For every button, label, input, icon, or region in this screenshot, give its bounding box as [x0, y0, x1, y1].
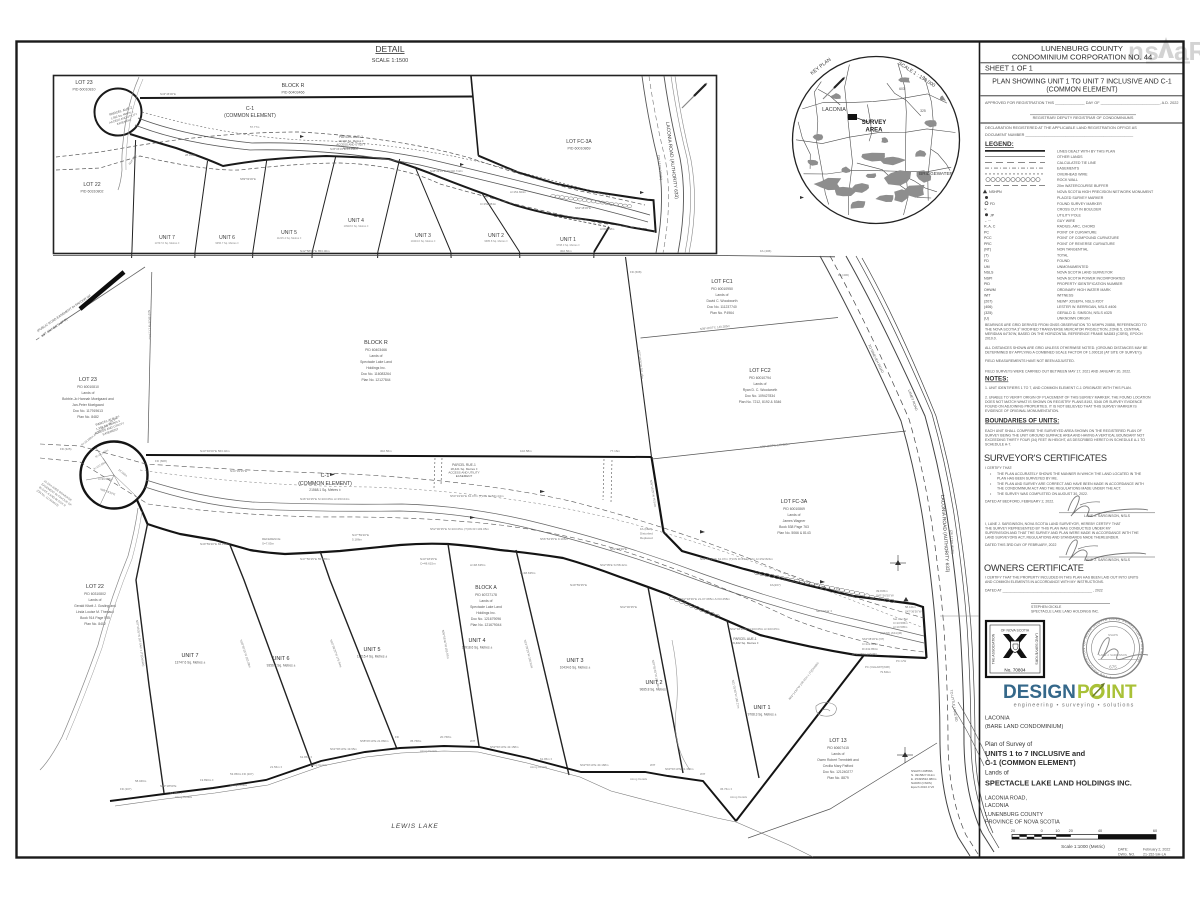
svg-text:UM: UM [984, 265, 990, 269]
svg-text:INT: INT [1106, 682, 1137, 703]
svg-text:9356.7 Sq. Metres ±: 9356.7 Sq. Metres ± [215, 241, 239, 245]
svg-text:NOTES:: NOTES: [985, 376, 1008, 383]
svg-text:(COMMON ELEMENT): (COMMON ELEMENT) [224, 113, 276, 119]
svg-text:OHWM: OHWM [984, 288, 996, 292]
svg-text:R, A, C: R, A, C [984, 225, 996, 229]
svg-text:N62°05'E S=58.42m: N62°05'E S=58.42m [600, 563, 628, 567]
svg-text:UNIT 6: UNIT 6 [273, 656, 290, 662]
svg-text:NOVA SCOTIA POWER INCORPORATED: NOVA SCOTIA POWER INCORPORATED [1057, 276, 1126, 280]
svg-text:UNIT 1: UNIT 1 [754, 705, 771, 711]
svg-text:C-1: C-1 [246, 106, 254, 112]
svg-text:CALCULATED TIE LINE: CALCULATED TIE LINE [1057, 161, 1097, 165]
svg-text:Along Details: Along Details [420, 749, 438, 753]
svg-text:PROPERTY IDENTIFICATION NUMBER: PROPERTY IDENTIFICATION NUMBER [1057, 282, 1123, 286]
svg-text:FOUND SURVEY MARKER: FOUND SURVEY MARKER [1057, 202, 1102, 206]
svg-text:Lands of: Lands of [787, 513, 800, 517]
svg-text:A=152.824m: A=152.824m [510, 190, 527, 194]
svg-text:RADIUS, ARC, CHORD: RADIUS, ARC, CHORD [1057, 225, 1096, 229]
svg-text:FOUND ON ADJOINING PROPERTIES.: FOUND ON ADJOINING PROPERTIES. IT IS NOT… [985, 405, 1137, 409]
svg-text:SURVEY BEING THE UNIT GROUND S: SURVEY BEING THE UNIT GROUND SURFACE ARE… [985, 434, 1145, 438]
svg-text:Plan No. 12127844: Plan No. 12127844 [361, 378, 390, 382]
svg-text:SCALE 1:1500: SCALE 1:1500 [372, 58, 408, 64]
svg-text:N62°18'36"E: N62°18'36"E [575, 206, 591, 210]
svg-text:9685.8 Sq. Metres ±: 9685.8 Sq. Metres ± [640, 688, 669, 692]
svg-text:THE SURVEY REPRESENTED BY THIS: THE SURVEY REPRESENTED BY THIS PLAN WAS … [985, 527, 1111, 531]
svg-text:I, LANE J. SARGINSON, NOVA SCO: I, LANE J. SARGINSON, NOVA SCOTIA LAND S… [985, 522, 1122, 526]
svg-text:79.841m: 79.841m [880, 670, 892, 674]
svg-text:PID 60727178: PID 60727178 [475, 593, 497, 597]
svg-text:Spectacle Lake Land: Spectacle Lake Land [360, 360, 392, 364]
svg-text:(COMMON ELEMENT): (COMMON ELEMENT) [1046, 87, 1117, 94]
svg-text:Set Rebar ±: Set Rebar ± [816, 609, 832, 613]
svg-text:N63°18'50"E: N63°18'50"E [160, 784, 176, 788]
svg-text:PLAN HAS BEEN SURVEYED BY ME.: PLAN HAS BEEN SURVEYED BY ME. [997, 477, 1058, 481]
svg-text:THE NOVA SCOTIA 3° MODIFIED TR: THE NOVA SCOTIA 3° MODIFIED TRANSVERSE M… [985, 328, 1140, 332]
svg-text:N43°46'00"E: N43°46'00"E [160, 92, 176, 96]
svg-text:(T): (T) [984, 253, 989, 257]
svg-text:R=432.850m: R=432.850m [862, 647, 879, 651]
svg-text:UNIT 2: UNIT 2 [646, 680, 663, 686]
svg-text:FA (DEF): FA (DEF) [640, 527, 652, 531]
svg-text:WIT: WIT [700, 772, 706, 776]
svg-text:James Wagner: James Wagner [783, 519, 807, 523]
svg-text:DETERMINED BY APPLYING A COMBI: DETERMINED BY APPLYING A COMBINED SCALE … [985, 351, 1142, 355]
svg-text:LANE J. SARGINSON, NSLS: LANE J. SARGINSON, NSLS [1084, 514, 1131, 518]
svg-text:Holdings Inc.: Holdings Inc. [476, 611, 496, 615]
svg-text:A=63.258m: A=63.258m [600, 227, 615, 231]
svg-text:P: P [1077, 682, 1090, 703]
svg-text:302.56m: 302.56m [380, 449, 392, 453]
svg-text:Book 538 Page 763: Book 538 Page 763 [779, 525, 809, 529]
svg-text:FOUND: FOUND [1057, 259, 1070, 263]
svg-text:Lands of: Lands of [753, 382, 766, 386]
svg-text:Owen Robert Tremblett and: Owen Robert Tremblett and [817, 758, 859, 762]
svg-text:SPECTACLE LAKE LAND HOLDINGS I: SPECTACLE LAKE LAND HOLDINGS INC. [985, 779, 1132, 788]
svg-text:David C. Woodworth: David C. Woodworth [706, 299, 737, 303]
svg-text:WIT: WIT [984, 294, 991, 298]
svg-text:(NT): (NT) [984, 248, 991, 252]
svg-text:(NT): (NT) [848, 594, 854, 598]
svg-text:LOT 23: LOT 23 [79, 377, 97, 383]
svg-text:20.768m: 20.768m [440, 735, 452, 739]
svg-text:BLOCK R: BLOCK R [364, 340, 388, 346]
svg-text:10918.6 Sq. Metres ±: 10918.6 Sq. Metres ± [462, 646, 493, 650]
svg-text:EASEMENT: EASEMENT [343, 146, 359, 150]
svg-text:N52°50'10"E 43.158m: N52°50'10"E 43.158m [490, 745, 519, 749]
svg-text:N42°58'00"E 853.00m: N42°58'00"E 853.00m [300, 249, 330, 253]
svg-text:(U): (U) [984, 317, 989, 321]
svg-text:Plan No. 8482: Plan No. 8482 [77, 415, 99, 419]
svg-text:FIELD SURVEYS WERE CARRIED OUT: FIELD SURVEYS WERE CARRIED OUT BETWEEN M… [985, 370, 1131, 374]
svg-text:Disturbed: Disturbed [640, 532, 653, 536]
svg-text:53.050m FD (207): 53.050m FD (207) [230, 772, 253, 776]
svg-text:EASEMENTS: EASEMENTS [1057, 167, 1080, 171]
svg-text:UNMONUMENTED: UNMONUMENTED [1057, 265, 1089, 269]
svg-text:20: 20 [1011, 829, 1015, 833]
svg-text:DATED THIS 3RD DAY OF FEBRUARY: DATED THIS 3RD DAY OF FEBRUARY, 2022 [985, 543, 1056, 547]
svg-text:LOT FC-3A: LOT FC-3A [566, 139, 592, 145]
svg-text:DOES NOT MATCH WHAT IS SHOWN O: DOES NOT MATCH WHAT IS SHOWN ON REGISTRY… [985, 400, 1143, 404]
svg-text:WIT: WIT [470, 739, 476, 743]
svg-text:Lands of: Lands of [715, 293, 728, 297]
svg-text:LACONIA: LACONIA [985, 803, 1009, 809]
svg-text:PID 60607415: PID 60607415 [827, 746, 849, 750]
svg-text:13747.6 Sq. Metres ±: 13747.6 Sq. Metres ± [175, 661, 206, 665]
svg-text:ORDINARY HIGH WATER MARK: ORDINARY HIGH WATER MARK [1057, 288, 1111, 292]
svg-text:WIT: WIT [650, 763, 656, 767]
svg-text:9768.3 Sq. Metres ±: 9768.3 Sq. Metres ± [748, 713, 777, 717]
svg-text:N62°44'35"E 61.07m (T)ON R=4: N62°44'35"E 61.07m (T)ON R=432.712m A=15… [700, 557, 773, 561]
svg-text:UNIT 2: UNIT 2 [488, 233, 504, 239]
svg-text:ROCK WALL: ROCK WALL [1057, 178, 1078, 182]
svg-text:N62°50'10"E 40.168m: N62°50'10"E 40.168m [580, 763, 609, 767]
svg-text:REFERENCE: REFERENCE [262, 537, 281, 541]
svg-text:EACH UNIT SHALL COMPRISE THE S: EACH UNIT SHALL COMPRISE THE SURVEYED AR… [985, 429, 1142, 433]
svg-text:PRC: PRC [984, 242, 992, 246]
svg-text:THE ASSOCIATION: THE ASSOCIATION [992, 633, 996, 664]
svg-text:engineering • surveying •: engineering • surveying • solutions [1014, 703, 1135, 709]
svg-text:THE CONDOMINIUM ACT AND THE R: THE CONDOMINIUM ACT AND THE REGULATIONS … [997, 487, 1121, 491]
svg-text:SHEET 1 OF 1: SHEET 1 OF 1 [985, 64, 1033, 73]
svg-text:PID 60010950: PID 60010950 [711, 287, 733, 291]
svg-text:Plan No. P4964: Plan No. P4964 [710, 311, 734, 315]
svg-text:BEARINGS ARE GRID DERIVED FROM: BEARINGS ARE GRID DERIVED FROM GNSS OBSE… [985, 323, 1147, 327]
svg-text:PID 60403466: PID 60403466 [365, 348, 387, 352]
svg-text:LOT FC-3A: LOT FC-3A [781, 499, 808, 505]
svg-text:N43°46'00"E 563.02m: N43°46'00"E 563.02m [200, 449, 230, 453]
svg-text:I CERTIFY THAT:: I CERTIFY THAT: [985, 466, 1012, 470]
svg-text:LOT 23: LOT 23 [75, 80, 92, 86]
svg-text:DESIGN: DESIGN [1003, 682, 1076, 703]
svg-text:FD (608): FD (608) [155, 459, 167, 463]
svg-text:UNIT 4: UNIT 4 [348, 218, 364, 224]
svg-text:LEGEND:: LEGEND: [985, 141, 1014, 148]
svg-text:Plan of Survey of: Plan of Survey of [985, 741, 1032, 748]
svg-text:60: 60 [1153, 829, 1157, 833]
svg-text:UNIT 7: UNIT 7 [159, 235, 175, 241]
svg-text:PID 60403466: PID 60403466 [282, 91, 305, 95]
svg-text:N62°18'36"E S=103.05m A=103.: N62°18'36"E S=103.05m A=103.05m [730, 627, 780, 631]
svg-text:Cecilia Mary Pafford: Cecilia Mary Pafford [823, 764, 854, 768]
svg-text:BLOCK R: BLOCK R [282, 83, 305, 89]
svg-text:Doc No. 109427834: Doc No. 109427834 [745, 394, 775, 398]
svg-text:GERALD D. SIMSON, NSLS #325: GERALD D. SIMSON, NSLS #325 [1057, 311, 1112, 315]
svg-text:SCHEDULE A-7.: SCHEDULE A-7. [985, 443, 1011, 447]
svg-text:PID 60310802: PID 60310802 [81, 190, 104, 194]
svg-text:PROVINCE OF NOVA SCOTIA: PROVINCE OF NOVA SCOTIA [985, 820, 1060, 826]
svg-text:I CERTIFY THAT THE PROPERTY IN: I CERTIFY THAT THE PROPERTY INCLUDED IN … [985, 576, 1139, 580]
svg-text:C-1: C-1 [321, 473, 330, 479]
svg-text:LAND SURVEYORS ACT, REGULATION: LAND SURVEYORS ACT, REGULATIONS AND STAN… [985, 536, 1119, 540]
svg-text:TOTAL: TOTAL [1057, 253, 1068, 257]
svg-text:EASEMENT: EASEMENT [456, 474, 473, 478]
svg-text:✕: ✕ [984, 208, 987, 212]
svg-text:NSLS: NSLS [984, 271, 994, 275]
svg-text:JP: JP [990, 213, 995, 217]
svg-text:77.16m: 77.16m [610, 449, 621, 453]
svg-text:S=7.05m: S=7.05m [262, 542, 275, 546]
svg-text:N43°18'25"E: N43°18'25"E [420, 557, 437, 561]
svg-text:PID: PID [984, 282, 990, 286]
svg-text:Replaced: Replaced [640, 536, 653, 540]
svg-text:9685.8 Sq. Metres ±: 9685.8 Sq. Metres ± [484, 239, 508, 243]
svg-text:PC (OHLAW?)(608): PC (OHLAW?)(608) [865, 665, 890, 669]
svg-text:OTHER LANDS: OTHER LANDS [1057, 155, 1083, 159]
svg-text:BOUNDARIES OF UNITS:: BOUNDARIES OF UNITS: [985, 418, 1059, 425]
svg-text:B=48.635m: B=48.635m [520, 571, 536, 575]
svg-text:BLOCK A: BLOCK A [475, 585, 497, 591]
svg-text:N58°06'10"E 21.860m: N58°06'10"E 21.860m [360, 739, 389, 743]
svg-text:675: 675 [1109, 665, 1117, 670]
svg-text:20m WATERCOURSE BUFFER: 20m WATERCOURSE BUFFER [1057, 184, 1109, 188]
svg-text:36.76m ±: 36.76m ± [720, 787, 732, 791]
svg-text:EXCEEDING THIRTY FOUR (34) FEE: EXCEEDING THIRTY FOUR (34) FEET IN HEIGH… [985, 438, 1145, 442]
svg-text:C-1 (COMMON ELEMENT): C-1 (COMMON ELEMENT) [985, 758, 1076, 767]
svg-text:Plan No. 121679044: Plan No. 121679044 [471, 623, 502, 627]
svg-text:0: 0 [1041, 829, 1043, 833]
svg-text:LOT 22: LOT 22 [86, 584, 104, 590]
svg-text:PID 60010869: PID 60010869 [568, 147, 591, 151]
svg-text:GUY WIRE: GUY WIRE [1057, 219, 1076, 223]
svg-text:(BARE LAND CONDOMINIUM): (BARE LAND CONDOMINIUM) [985, 724, 1063, 730]
svg-text:Doc No. 117919613: Doc No. 117919613 [73, 409, 103, 413]
svg-text:No. 70804: No. 70804 [1004, 668, 1026, 673]
svg-text:PC: PC [984, 230, 989, 234]
svg-text:20: 20 [1069, 829, 1073, 833]
svg-text:FD: FD [990, 202, 995, 206]
svg-text:Along Details: Along Details [230, 783, 248, 787]
svg-text:LINES DEALT WITH BY THIS PLAN: LINES DEALT WITH BY THIS PLAN [1057, 149, 1115, 153]
svg-text:FD: FD [984, 259, 989, 263]
svg-text:UNIT 3: UNIT 3 [567, 658, 584, 664]
svg-text:PID 60010794: PID 60010794 [749, 376, 771, 380]
svg-text:LOT FC2: LOT FC2 [749, 368, 770, 374]
svg-text:302.56m: 302.56m [560, 249, 572, 253]
svg-text:NEWP JOSEPH, NSLS #207: NEWP JOSEPH, NSLS #207 [1057, 299, 1103, 303]
svg-text:Doc No. 116083264: Doc No. 116083264 [361, 372, 391, 376]
svg-text:NSPI: NSPI [984, 276, 992, 280]
svg-text:UNIT 7: UNIT 7 [182, 653, 199, 659]
svg-text:PLAN SHOWING UNIT 1 TO UNIT 7: PLAN SHOWING UNIT 1 TO UNIT 7 INCLUSIVE … [992, 79, 1172, 86]
svg-text:(325): (325) [984, 311, 992, 315]
svg-text:28.350m: 28.350m [185, 153, 197, 157]
svg-text:FD (608): FD (608) [630, 270, 641, 274]
svg-text:UNKNOWN ORIGIN: UNKNOWN ORIGIN [1057, 317, 1090, 321]
svg-text:PID 60310802: PID 60310802 [84, 592, 106, 596]
svg-text:LOT FC1: LOT FC1 [711, 279, 732, 285]
svg-text:POINT OF REVERSE CURVATURE: POINT OF REVERSE CURVATURE [1057, 242, 1115, 246]
svg-text:Doc No. 121679096: Doc No. 121679096 [471, 617, 501, 621]
svg-text:N49°59'20"E 84.198m: N49°59'20"E 84.198m [200, 542, 230, 546]
svg-text:←···: ←··· [984, 219, 991, 223]
svg-text:UNIT 1: UNIT 1 [560, 237, 576, 243]
svg-text:A=48.635m: A=48.635m [470, 563, 486, 567]
svg-text:Lands of: Lands of [81, 391, 94, 395]
svg-text:UNIT 5: UNIT 5 [364, 647, 381, 653]
svg-text:N52°30'35"E S=103.05m (T)ON: N52°30'35"E S=103.05m (T)ON R=103.05m [430, 527, 489, 531]
svg-text:PID 60010810: PID 60010810 [73, 88, 96, 92]
svg-text:Along Details: Along Details [630, 777, 648, 781]
svg-text:S47°36'50"W: S47°36'50"W [905, 610, 922, 614]
svg-text:BRIDGEWATER: BRIDGEWATER [919, 171, 953, 176]
svg-text:STEPHEN OICKLE: STEPHEN OICKLE [1031, 605, 1062, 609]
svg-text:13747.6 Sq. Metres ±: 13747.6 Sq. Metres ± [155, 241, 180, 245]
svg-text:Plan No. 8879: Plan No. 8879 [827, 776, 849, 780]
svg-text:SURVEYOR'S CERTIFICATES: SURVEYOR'S CERTIFICATES [984, 453, 1107, 463]
svg-text:PID 60010810: PID 60010810 [77, 385, 99, 389]
svg-text:FD (325): FD (325) [60, 447, 71, 451]
svg-text:UNIT 5: UNIT 5 [281, 230, 297, 236]
svg-text:Plan No. 8402: Plan No. 8402 [84, 622, 106, 626]
svg-text:Lands of: Lands of [479, 599, 492, 603]
svg-text:N46°10'25"E S=103.05m A=153.: N46°10'25"E S=103.05m A=153.04m [300, 497, 350, 501]
svg-text:C=48.615m: C=48.615m [420, 562, 436, 566]
svg-text:UNIT 3: UNIT 3 [415, 233, 431, 239]
svg-text:Lands of: Lands of [88, 598, 101, 602]
svg-text:A=33.050m (AS(M)): A=33.050m (AS(M)) [852, 652, 877, 656]
svg-text:POINT OF COMPOUND CURVATURE: POINT OF COMPOUND CURVATURE [1057, 236, 1120, 240]
svg-text:Along Details: Along Details [310, 763, 328, 767]
svg-text:MERIDIAN 64°30'W, BASED ON THE: MERIDIAN 64°30'W, BASED ON THE HORIZONTA… [985, 332, 1143, 336]
svg-text:325: 325 [920, 109, 926, 113]
svg-text:Doc No. 121240277: Doc No. 121240277 [823, 770, 853, 774]
svg-text:35.768m: 35.768m [410, 739, 422, 743]
svg-text:102.58m: 102.58m [520, 449, 532, 453]
svg-text:UTILITY POLE: UTILITY POLE [1057, 213, 1082, 217]
svg-text:N47°59'20"E: N47°59'20"E [352, 533, 369, 537]
svg-text:C=122.953m: C=122.953m [862, 642, 879, 646]
svg-text:N50°19'30"E 61.07m (T)ON R=5: N50°19'30"E 61.07m (T)ON R=561.04m [450, 494, 504, 498]
svg-text:PC C/W: PC C/W [896, 659, 906, 663]
svg-text:NOVA SCOTIA LAND SURVEYOR: NOVA SCOTIA LAND SURVEYOR [1057, 271, 1113, 275]
svg-text:Epoch 2010.0 V6: Epoch 2010.0 V6 [911, 785, 934, 789]
svg-text:58.441m: 58.441m [905, 605, 917, 609]
svg-text:SUPERVISION AND THAT THE SURVE: SUPERVISION AND THAT THE SURVEY AND PLAN… [985, 531, 1139, 535]
svg-text:2. UNABLE TO VERIFY ORIGIN OF: 2. UNABLE TO VERIFY ORIGIN OF PLACEMENT … [985, 396, 1151, 400]
svg-text:(U)&(M) (AS1)(M): (U)&(M) (AS1)(M) [880, 631, 902, 635]
svg-text:Jan-Peter Moelgaard: Jan-Peter Moelgaard [72, 403, 104, 407]
svg-text:APPROVED FOR REGISTRATION THIS: APPROVED FOR REGISTRATION THIS _________… [985, 101, 1178, 105]
svg-text:OWNERS CERTIFICATE: OWNERS CERTIFICATE [984, 563, 1084, 573]
svg-text:603: 603 [899, 87, 905, 91]
svg-text:AREA: AREA [865, 128, 883, 134]
svg-text:February 2, 2022: February 2, 2022 [1143, 848, 1170, 852]
svg-text:REGISTRAR/ DEPUTY REGISTRAR OF: REGISTRAR/ DEPUTY REGISTRAR OF CONDOMINI… [1033, 116, 1134, 120]
svg-text:Scale 1:1000 (Metric): Scale 1:1000 (Metric) [1061, 844, 1105, 849]
svg-text:11215.4 Sq. Metres ±: 11215.4 Sq. Metres ± [277, 236, 302, 240]
svg-text:10: 10 [1055, 829, 1059, 833]
svg-text:LACONIA ROAD,: LACONIA ROAD, [985, 796, 1027, 802]
svg-text:AND COMMON ELEMENTS IN ACCORDA: AND COMMON ELEMENTS IN ACCORDANCE WITH M… [985, 580, 1104, 584]
svg-text:N49°59'35"E: N49°59'35"E [570, 583, 587, 587]
svg-text:THE PLAN AND SURVEY ARE CORREC: THE PLAN AND SURVEY ARE CORRECT AND HAVE… [997, 482, 1144, 486]
svg-text:57.77m: 57.77m [250, 125, 260, 129]
svg-text:DECLARATION REGISTERED AT THE: DECLARATION REGISTERED AT THE APPLICABLE… [985, 126, 1137, 130]
svg-text:N44°39'35"E: N44°39'35"E [230, 469, 247, 473]
svg-text:FD: FD [395, 735, 399, 739]
svg-text:OVERHEAD WIRE: OVERHEAD WIRE [1057, 172, 1088, 176]
svg-text:A=10.595m: A=10.595m [893, 625, 908, 629]
svg-text:THE PLAN ACCURATELY SHOWS THE: THE PLAN ACCURATELY SHOWS THE MANNER IN … [997, 472, 1142, 476]
svg-text:Spectacle Lake Land: Spectacle Lake Land [470, 605, 502, 609]
svg-text:N62°30'35"E: N62°30'35"E [620, 605, 637, 609]
svg-text:N56°54'35"E 9.106m: N56°54'35"E 9.106m [540, 537, 568, 541]
svg-text:10434.6 Sq. Metres ±: 10434.6 Sq. Metres ± [411, 239, 436, 243]
svg-text:(207): (207) [984, 299, 992, 303]
svg-text:5.186m: 5.186m [352, 538, 363, 542]
svg-text:N62°08'36"E (NT): N62°08'36"E (NT) [862, 637, 884, 641]
svg-text:FA(207): FA(207) [770, 583, 781, 587]
svg-text:SPECTACLE LAKE LAND HOLDINGS I: SPECTACLE LAKE LAND HOLDINGS INC. [1031, 609, 1099, 613]
svg-text:UNITS 1 to 7 INCLUSIVE and: UNITS 1 to 7 INCLUSIVE and [985, 749, 1086, 758]
svg-text:Along Details: Along Details [530, 765, 548, 769]
svg-text:N62°18'36"E: N62°18'36"E [610, 547, 627, 551]
svg-text:61.95m ±: 61.95m ± [540, 757, 552, 761]
svg-text:40: 40 [1098, 829, 1102, 833]
svg-text:C=152.084m: C=152.084m [480, 202, 497, 206]
svg-text:LESTER W. BERRIGAN, NSLS #406: LESTER W. BERRIGAN, NSLS #406 [1057, 305, 1116, 309]
svg-text:Holdings Inc.: Holdings Inc. [366, 366, 386, 370]
svg-text:1. UNIT IDENTIFIERS 1 TO 7, AN: 1. UNIT IDENTIFIERS 1 TO 7, AND COMMON E… [985, 386, 1132, 390]
svg-text:FIELD MEASUREMENTS HAVE NOT BE: FIELD MEASUREMENTS HAVE NOT BEEN ADJUSTE… [985, 359, 1075, 363]
svg-text:FD (207): FD (207) [120, 787, 131, 791]
svg-text:UNIT 4: UNIT 4 [469, 638, 486, 644]
svg-text:21-152-SH-LA: 21-152-SH-LA [1143, 853, 1167, 857]
svg-text:DATED AT _____________________: DATED AT _______________________________… [985, 589, 1103, 593]
svg-text:Along Details: Along Details [730, 795, 748, 799]
svg-text:LACONIA: LACONIA [822, 107, 846, 113]
svg-text:Lands of: Lands of [831, 752, 844, 756]
svg-text:LANE J. SARGINSON: LANE J. SARGINSON [1099, 653, 1127, 657]
svg-text:Ryan D. C. Woodworth: Ryan D. C. Woodworth [743, 388, 778, 392]
svg-text:2010.0.: 2010.0. [985, 337, 997, 341]
svg-text:ALL DISTANCES SHOWN ARE GRID U: ALL DISTANCES SHOWN ARE GRID UNLESS OTHE… [985, 346, 1148, 350]
svg-text:PID 60010869: PID 60010869 [783, 507, 805, 511]
svg-text:N47°56'25"E 55.965m: N47°56'25"E 55.965m [300, 557, 330, 561]
svg-text:9356.7 Sq. Metres ±: 9356.7 Sq. Metres ± [267, 664, 296, 668]
svg-text:EVIDENCE OF ORIGINAL MONUMENTA: EVIDENCE OF ORIGINAL MONUMENTATION. [985, 409, 1059, 413]
svg-text:CROSS CUT IN BOULDER: CROSS CUT IN BOULDER [1057, 208, 1101, 212]
svg-text:PLACED SURVEY MARKER: PLACED SURVEY MARKER [1057, 196, 1104, 200]
svg-text:LUNENBURG COUNTY: LUNENBURG COUNTY [985, 812, 1044, 818]
svg-text:39.845m: 39.845m [876, 589, 888, 593]
svg-text:Doc No. 111237740: Doc No. 111237740 [707, 305, 737, 309]
svg-text:NSHPN: NSHPN [1108, 633, 1118, 637]
svg-text:21568.1 Sq. Metres ±: 21568.1 Sq. Metres ± [309, 488, 341, 492]
svg-text:Plan No. 5066 & 8143: Plan No. 5066 & 8143 [777, 531, 810, 535]
svg-text:SURVEY: SURVEY [862, 120, 887, 126]
svg-text:NSHPN: NSHPN [989, 190, 1002, 194]
svg-text:DATED AT BEDFORD, FEBRUARY 2,: DATED AT BEDFORD, FEBRUARY 2, 2022. [985, 500, 1054, 504]
svg-text:WITNESS: WITNESS [1057, 294, 1074, 298]
svg-text:N89°59'30"E: N89°59'30"E [240, 177, 256, 181]
svg-text:LANE J. SARGINSON, NSLS: LANE J. SARGINSON, NSLS [1084, 558, 1131, 562]
svg-text:Along Details: Along Details [175, 795, 193, 799]
svg-text:Lands of: Lands of [985, 770, 1009, 777]
svg-text:LOT 22: LOT 22 [83, 182, 100, 188]
svg-text:FA (406): FA (406) [760, 249, 771, 253]
svg-text:10434.6 Sq. Metres ±: 10434.6 Sq. Metres ± [560, 666, 591, 670]
svg-text:C=36.576m: C=36.576m [98, 477, 113, 481]
svg-text:NON TANGENTIAL: NON TANGENTIAL [1057, 248, 1088, 252]
svg-text:Bobbie-Jo Hannah Moelgaard and: Bobbie-Jo Hannah Moelgaard and [62, 397, 114, 401]
svg-text:9768.3 Sq. Metres ±: 9768.3 Sq. Metres ± [556, 243, 580, 247]
svg-text:NOVA SCOTIA HIGH PRECISION NET: NOVA SCOTIA HIGH PRECISION NETWORK MONUM… [1057, 190, 1154, 194]
svg-text:LAND SURVEYORS: LAND SURVEYORS [1035, 633, 1039, 665]
svg-text:19.890m ±: 19.890m ± [200, 778, 214, 782]
svg-text:19,402 Sq. Metres ±: 19,402 Sq. Metres ± [732, 641, 759, 645]
svg-text:N63°50'10"E 61.360m: N63°50'10"E 61.360m [665, 767, 694, 771]
